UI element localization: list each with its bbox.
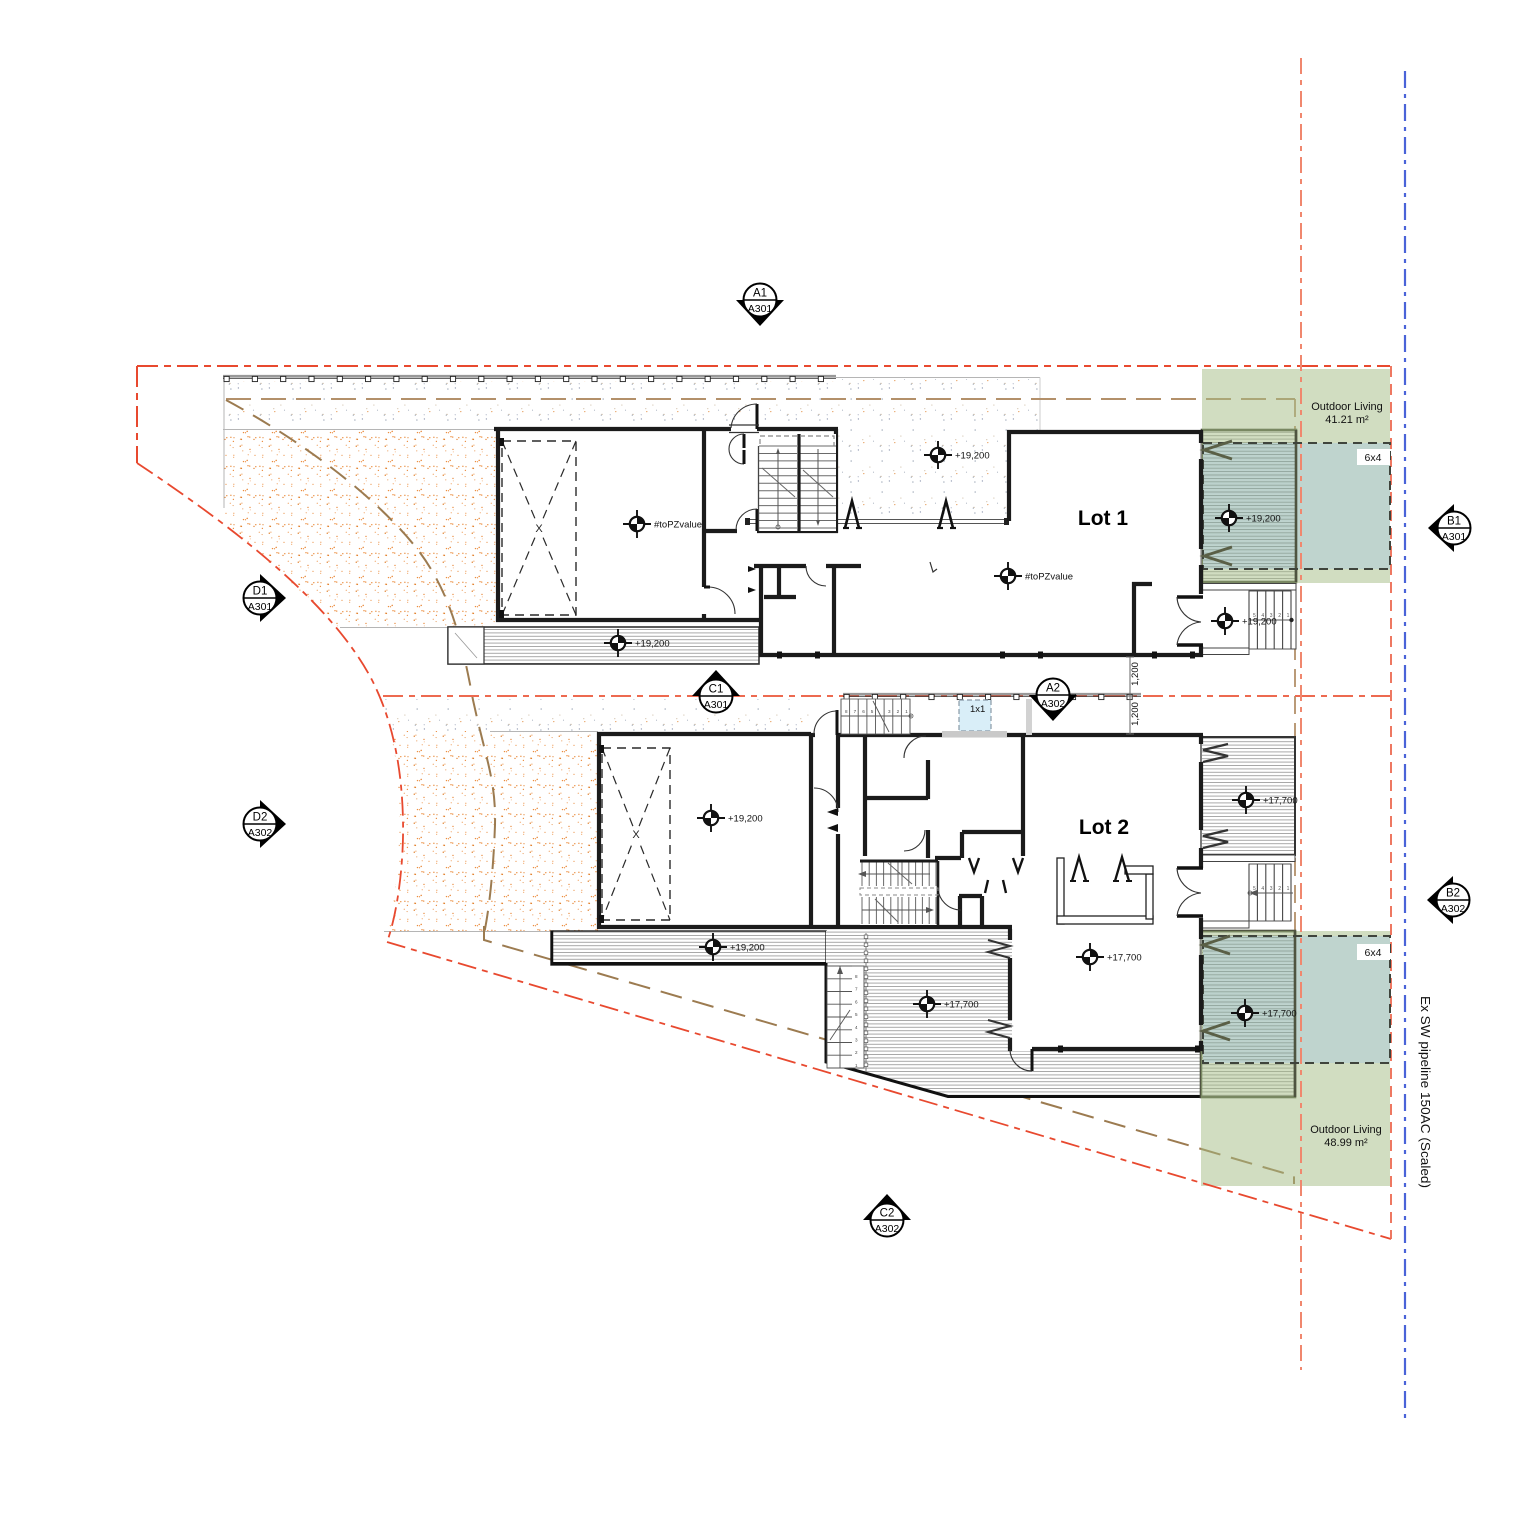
svg-text:1: 1 xyxy=(905,709,908,714)
svg-text:Lot 2: Lot 2 xyxy=(1079,816,1129,839)
svg-text:1: 1 xyxy=(1287,613,1290,619)
svg-text:A302: A302 xyxy=(1041,698,1066,710)
svg-text:1: 1 xyxy=(855,1063,858,1068)
svg-text:6x4: 6x4 xyxy=(1365,452,1382,464)
svg-text:Ex SW pipeline 150AC (Scaled): Ex SW pipeline 150AC (Scaled) xyxy=(1418,996,1433,1188)
svg-text:+17,700: +17,700 xyxy=(1263,796,1298,807)
svg-text:1: 1 xyxy=(1287,886,1290,892)
svg-text:+19,200: +19,200 xyxy=(1242,617,1277,628)
svg-text:+19,200: +19,200 xyxy=(955,451,990,462)
svg-text:C1: C1 xyxy=(709,684,724,696)
svg-text:A302: A302 xyxy=(248,827,273,839)
svg-text:+19,200: +19,200 xyxy=(1246,514,1281,525)
svg-text:4: 4 xyxy=(855,1025,858,1030)
svg-text:2: 2 xyxy=(1278,613,1281,619)
svg-text:A301: A301 xyxy=(748,303,773,315)
svg-text:A302: A302 xyxy=(1441,903,1466,915)
svg-text:8: 8 xyxy=(855,974,858,979)
svg-text:Outdoor Living: Outdoor Living xyxy=(1311,401,1383,413)
svg-text:A2: A2 xyxy=(1046,683,1060,695)
svg-text:2: 2 xyxy=(897,709,900,714)
svg-text:41.21 m²: 41.21 m² xyxy=(1325,414,1369,426)
svg-text:6x4: 6x4 xyxy=(1365,947,1382,959)
svg-text:B2: B2 xyxy=(1446,888,1460,900)
svg-text:+17,700: +17,700 xyxy=(944,1000,979,1011)
svg-text:1,200: 1,200 xyxy=(1130,662,1141,686)
svg-text:1x1: 1x1 xyxy=(970,704,985,715)
svg-text:6: 6 xyxy=(855,999,858,1004)
svg-text:A301: A301 xyxy=(1442,531,1467,543)
svg-text:A302: A302 xyxy=(875,1223,900,1235)
svg-text:+19,200: +19,200 xyxy=(728,814,763,825)
svg-text:B1: B1 xyxy=(1447,516,1461,528)
svg-text:3: 3 xyxy=(888,709,891,714)
svg-text:X: X xyxy=(535,523,543,535)
svg-text:7: 7 xyxy=(855,987,858,992)
svg-text:3: 3 xyxy=(1270,886,1273,892)
svg-text:4: 4 xyxy=(1261,886,1264,892)
svg-text:#toPZvalue: #toPZvalue xyxy=(1025,572,1073,583)
svg-text:D1: D1 xyxy=(253,586,268,598)
svg-text:5: 5 xyxy=(871,709,874,714)
svg-text:7: 7 xyxy=(854,709,857,714)
svg-text:6: 6 xyxy=(862,709,865,714)
svg-text:1,200: 1,200 xyxy=(1130,702,1141,726)
svg-text:5: 5 xyxy=(855,1012,858,1017)
svg-text:+17,700: +17,700 xyxy=(1107,953,1142,964)
svg-text:+17,700: +17,700 xyxy=(1262,1009,1297,1020)
svg-text:3: 3 xyxy=(855,1038,858,1043)
svg-text:2: 2 xyxy=(855,1050,858,1055)
svg-text:D2: D2 xyxy=(253,812,268,824)
svg-text:48.99 m²: 48.99 m² xyxy=(1324,1137,1368,1149)
svg-text:+19,200: +19,200 xyxy=(635,639,670,650)
svg-text:A1: A1 xyxy=(753,288,767,300)
svg-text:#toPZvalue: #toPZvalue xyxy=(654,520,702,531)
svg-text:X: X xyxy=(632,829,640,841)
svg-text:+19,200: +19,200 xyxy=(730,943,765,954)
svg-text:C2: C2 xyxy=(880,1208,895,1220)
svg-text:5: 5 xyxy=(1253,886,1256,892)
svg-text:Lot 1: Lot 1 xyxy=(1078,507,1128,530)
svg-text:A301: A301 xyxy=(248,601,273,613)
svg-text:2: 2 xyxy=(1278,886,1281,892)
svg-text:8: 8 xyxy=(845,709,848,714)
svg-text:Outdoor Living: Outdoor Living xyxy=(1310,1124,1382,1136)
svg-text:A301: A301 xyxy=(704,699,729,711)
